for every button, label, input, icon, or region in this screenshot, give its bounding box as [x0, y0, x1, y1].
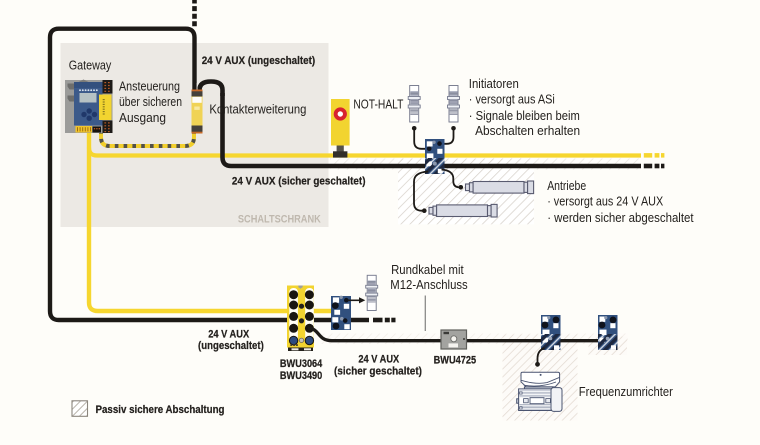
svg-text:Ansteuerung: Ansteuerung [119, 79, 180, 93]
svg-text:BWU3064: BWU3064 [280, 358, 322, 370]
svg-text:BWU3490: BWU3490 [280, 370, 322, 382]
svg-text:· versorgt aus 24 V AUX: · versorgt aus 24 V AUX [547, 194, 664, 208]
svg-text:24 V AUX: 24 V AUX [208, 328, 250, 340]
svg-text:24 V AUX: 24 V AUX [358, 354, 399, 366]
svg-text:NOT-HALT: NOT-HALT [353, 97, 403, 111]
svg-text:(ungeschaltet): (ungeschaltet) [198, 340, 264, 352]
svg-text:Initiatoren: Initiatoren [469, 77, 519, 91]
svg-text:SCHALTSCHRANK: SCHALTSCHRANK [238, 214, 321, 226]
svg-text:· Signale bleiben beim: · Signale bleiben beim [469, 109, 580, 123]
svg-text:über sicheren: über sicheren [119, 95, 182, 109]
svg-text:(sicher geschaltet): (sicher geschaltet) [334, 365, 422, 377]
svg-text:Kontakterweiterung: Kontakterweiterung [209, 103, 306, 117]
svg-text:BWU4725: BWU4725 [434, 354, 477, 366]
svg-text:Gateway: Gateway [69, 59, 112, 73]
svg-text:· versorgt aus ASi: · versorgt aus ASi [469, 92, 555, 106]
svg-text:· werden sicher abgeschaltet: · werden sicher abgeschaltet [547, 211, 694, 225]
svg-text:24 V AUX (sicher geschaltet): 24 V AUX (sicher geschaltet) [232, 176, 366, 188]
svg-text:Rundkabel mit: Rundkabel mit [391, 263, 464, 277]
svg-text:Passiv sichere Abschaltung: Passiv sichere Abschaltung [96, 404, 225, 416]
svg-text:Frequenzumrichter: Frequenzumrichter [579, 385, 673, 399]
svg-text:24 V AUX (ungeschaltet): 24 V AUX (ungeschaltet) [202, 55, 316, 67]
svg-text:Abschalten erhalten: Abschalten erhalten [475, 124, 580, 138]
svg-text:Ausgang: Ausgang [119, 111, 166, 125]
svg-text:Antriebe: Antriebe [547, 179, 586, 193]
svg-text:M12-Anschluss: M12-Anschluss [390, 278, 467, 292]
